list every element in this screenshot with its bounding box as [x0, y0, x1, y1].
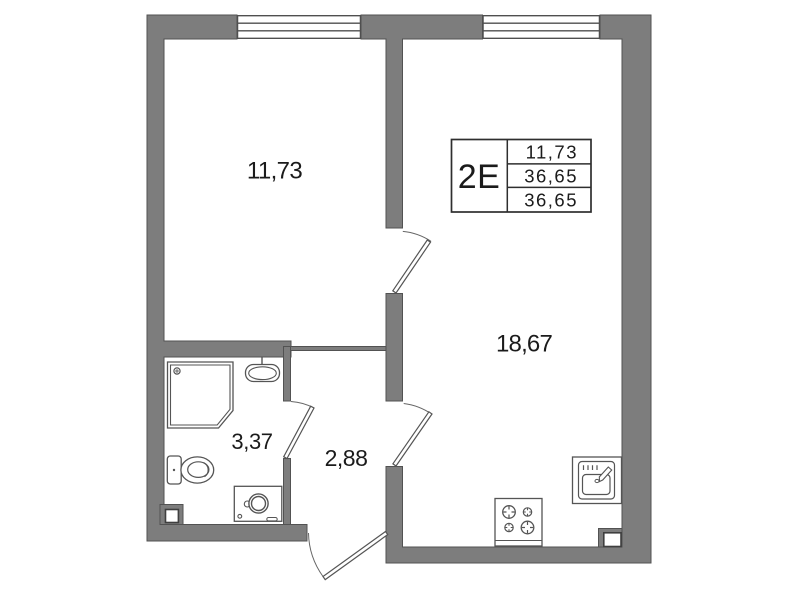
svg-text:18,67: 18,67	[496, 331, 553, 358]
svg-text:3,37: 3,37	[231, 429, 272, 454]
svg-text:36,65: 36,65	[524, 165, 578, 186]
svg-text:2Е: 2Е	[458, 158, 501, 196]
svg-text:36,65: 36,65	[524, 190, 578, 211]
svg-text:11,73: 11,73	[526, 141, 578, 162]
svg-text:11,73: 11,73	[247, 157, 303, 184]
svg-text:2,88: 2,88	[325, 445, 368, 471]
